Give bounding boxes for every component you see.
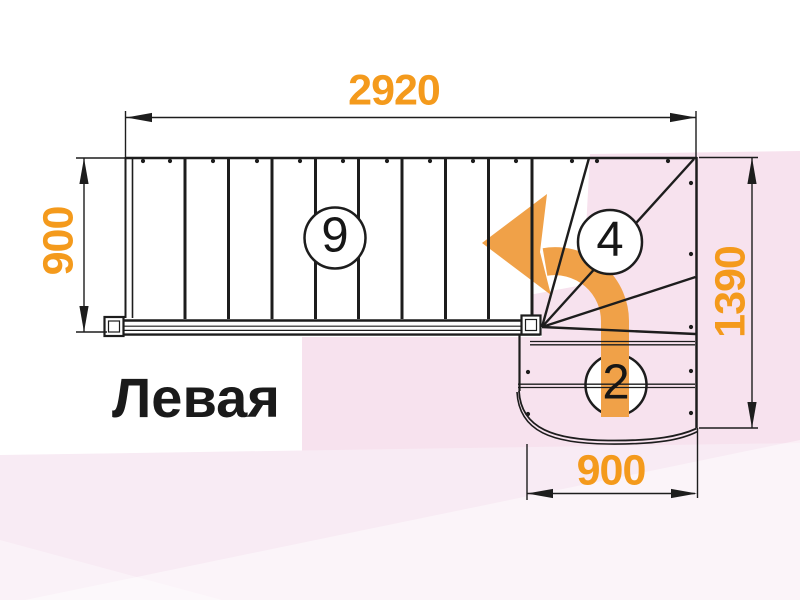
step-circle-main-flight xyxy=(305,208,366,269)
dimension-bottom xyxy=(527,444,697,500)
dimension-top xyxy=(126,111,697,157)
dimension-right xyxy=(699,158,758,429)
stair-plan-drawing xyxy=(0,0,800,600)
step-circle-winders xyxy=(578,210,642,274)
dimension-left xyxy=(76,158,126,332)
stair-plan-diagram: 2920 900 1390 900 9 4 2 Левая xyxy=(0,0,800,600)
